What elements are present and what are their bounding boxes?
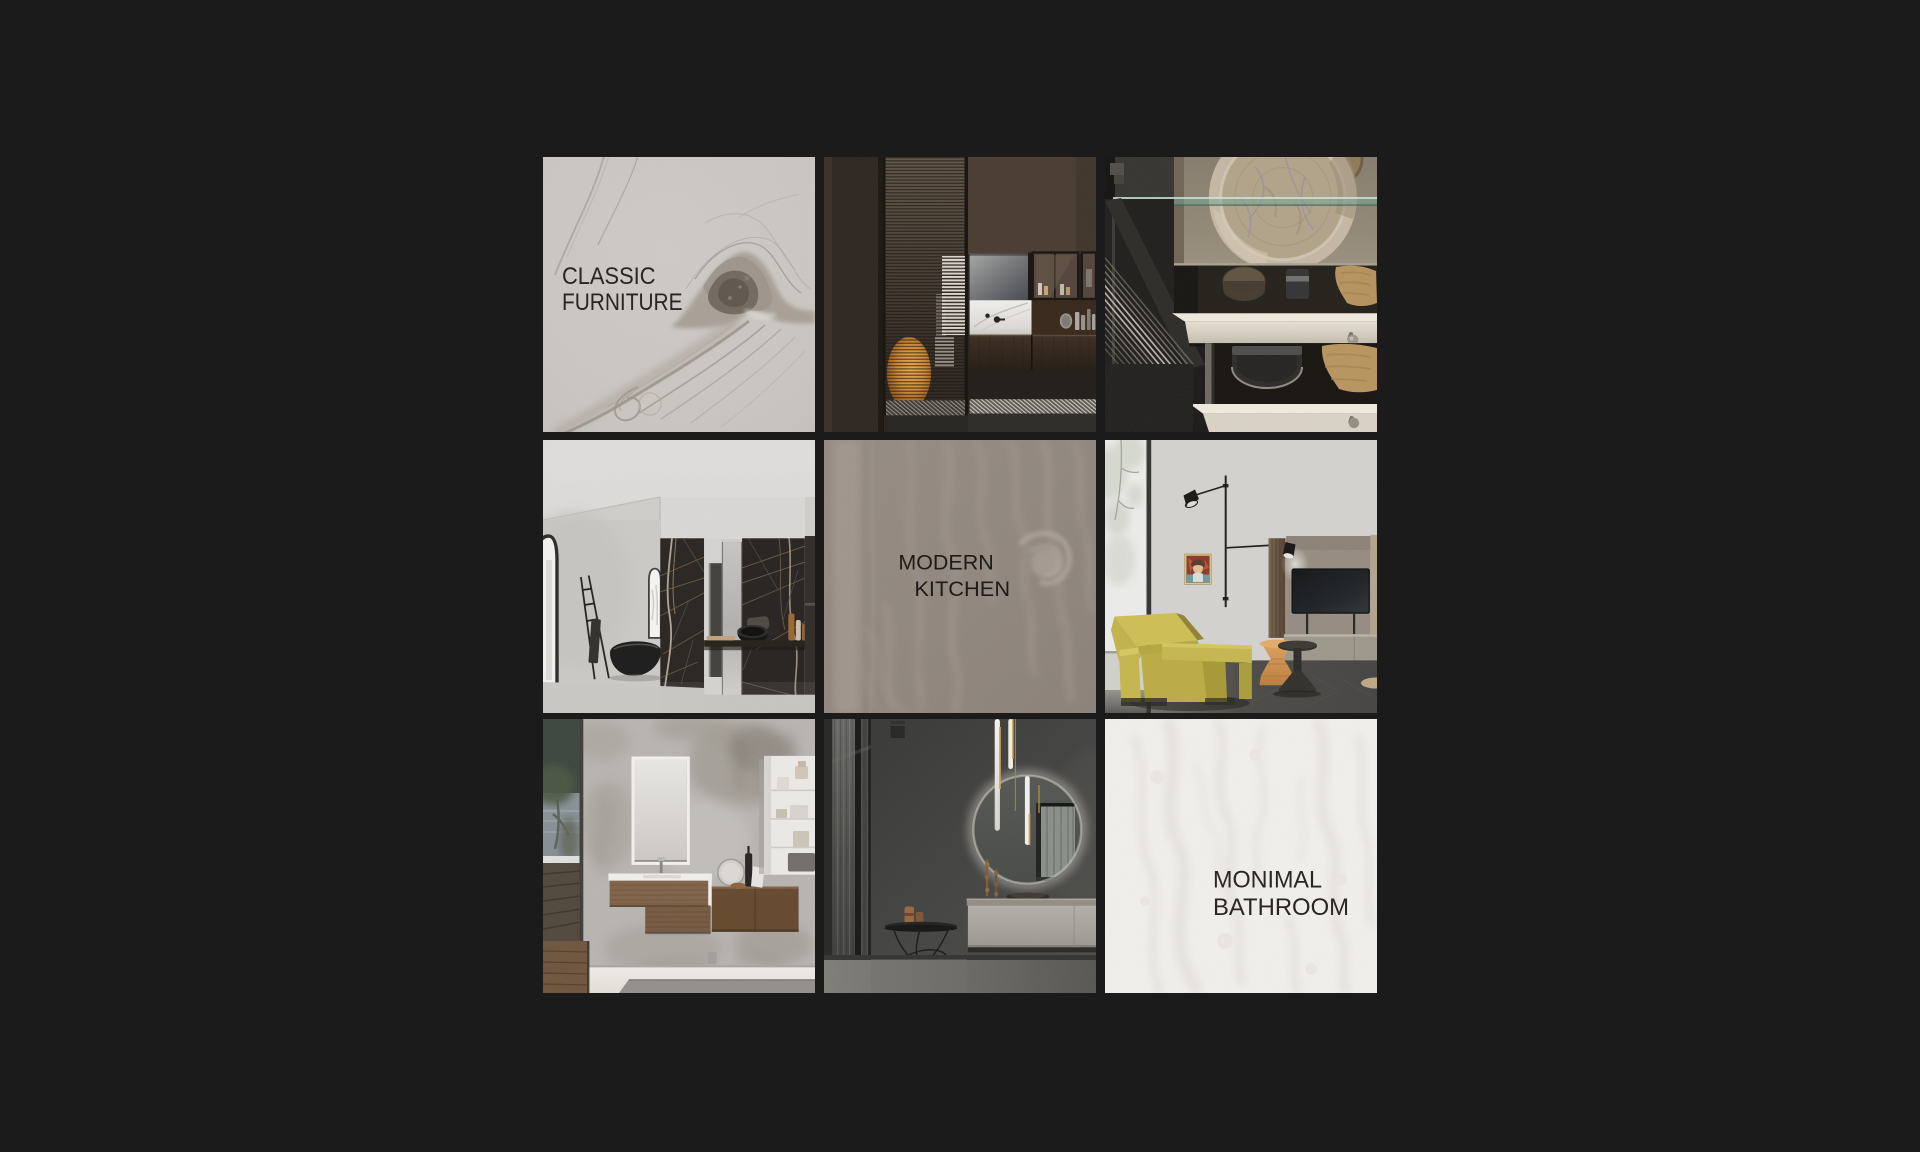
svg-text:KITCHEN: KITCHEN — [914, 578, 1010, 601]
svg-text:CLASSIC: CLASSIC — [562, 263, 656, 290]
svg-text:FURNITURE: FURNITURE — [562, 289, 683, 316]
svg-text:BATHROOM: BATHROOM — [1213, 894, 1349, 921]
svg-text:MODERN: MODERN — [898, 552, 993, 575]
svg-text:MONIMAL: MONIMAL — [1213, 867, 1322, 894]
